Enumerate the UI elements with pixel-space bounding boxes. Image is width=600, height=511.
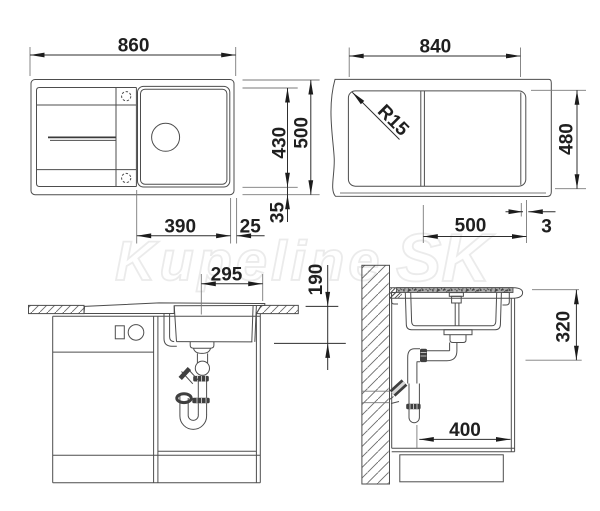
svg-text:480: 480 xyxy=(557,123,578,155)
svg-text:35: 35 xyxy=(268,202,289,224)
svg-text:390: 390 xyxy=(164,217,196,238)
svg-text:320: 320 xyxy=(554,311,575,343)
svg-text:295: 295 xyxy=(211,265,243,286)
svg-text:840: 840 xyxy=(420,37,452,58)
svg-text:430: 430 xyxy=(269,127,290,159)
svg-text:190: 190 xyxy=(306,264,327,296)
svg-text:25: 25 xyxy=(240,217,262,238)
svg-text:500: 500 xyxy=(455,216,487,237)
svg-text:500: 500 xyxy=(292,117,313,149)
svg-text:860: 860 xyxy=(118,36,150,57)
svg-text:3: 3 xyxy=(541,217,552,238)
svg-text:400: 400 xyxy=(449,420,481,441)
